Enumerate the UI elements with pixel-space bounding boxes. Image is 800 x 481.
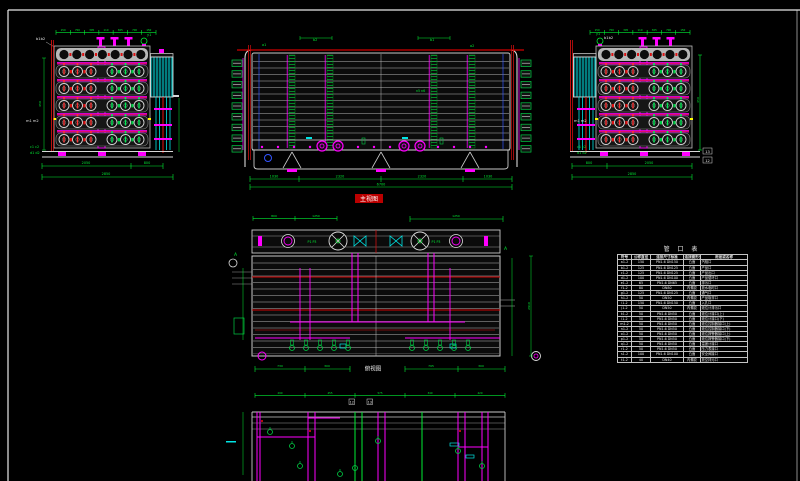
bottom-view-top-ticks: 290455575340420: [255, 391, 505, 398]
left-view-base: [42, 152, 173, 158]
front-view-label-a1: a1: [262, 43, 266, 47]
front-view-skirt: [254, 150, 508, 172]
front-view-right-flange-stack: [521, 60, 531, 152]
plan-bottom-dim-1: 730: [277, 364, 283, 368]
plan-view-section-a-right: A: [504, 246, 508, 252]
left-view-top-ticks: 150700305110305700150: [56, 28, 156, 35]
nozzle-table-cell: t1-2: [618, 357, 632, 362]
right-view-dim-total: 2850: [628, 172, 637, 176]
left-view-dim-seg2: 800: [144, 161, 150, 165]
left-view-label-m: m1 m2: [26, 119, 39, 123]
right-view-dim-seg2: 2050: [645, 161, 654, 165]
right-view-part-a: 13: [705, 150, 710, 154]
left-view-left-pipes: [42, 40, 54, 152]
front-view: a1 b2 b1 a2 n5 n6 1030 2320 2320 1030 67…: [232, 36, 531, 203]
plan-view-section-a-left: A: [234, 252, 238, 258]
svg-text:420: 420: [478, 391, 483, 395]
right-view-base: [570, 152, 700, 158]
svg-text:700: 700: [666, 28, 671, 32]
front-view-label-n: n5 n6: [416, 89, 425, 93]
right-view-label-b: b1b2: [604, 36, 613, 40]
svg-text:150: 150: [61, 28, 66, 32]
bottom-view-bubble-b-label: 13: [368, 401, 372, 405]
svg-text:290: 290: [278, 391, 283, 395]
nozzle-table-cell: 放空排污口: [701, 357, 748, 362]
plan-bottom-dim-4: 300: [478, 364, 484, 368]
front-view-label-a2: a2: [470, 44, 474, 48]
bottom-view-valves: [268, 427, 485, 477]
plan-view-top-channel: [252, 230, 500, 253]
front-dim-2: 2320: [336, 175, 345, 179]
plan-view-title: 俯视图: [365, 365, 382, 373]
left-view-economizer: [151, 49, 180, 153]
plan-view-p-right: P1 P3: [432, 240, 441, 244]
plan-view-right-dim: 2910: [527, 302, 531, 310]
svg-text:305: 305: [118, 28, 123, 32]
plan-view: 8001250 1250 P1 P3 P1 P: [229, 214, 541, 373]
plan-view-top-dim-right-label: 1250: [452, 214, 460, 218]
left-view-label-c: c1 c2: [30, 145, 39, 149]
right-view-side-dim: 450: [696, 97, 700, 103]
bottom-view: 290455575340420 12 13: [226, 391, 505, 481]
nozzle-table: 符号公称直径连接尺寸标准连接面形式用途或名称 a1-2150PN1.6 DN15…: [617, 254, 747, 363]
svg-text:455: 455: [328, 391, 333, 395]
bottom-view-body: [226, 412, 505, 481]
svg-text:1250: 1250: [312, 214, 320, 218]
plan-view-p-left: P1 P3: [308, 240, 317, 244]
svg-text:305: 305: [652, 28, 657, 32]
svg-text:700: 700: [75, 28, 80, 32]
left-view-dim-total: 2850: [102, 172, 111, 176]
left-view-label-y1: y1: [147, 33, 151, 37]
cad-drawing-sheet: 150700305110305700150 450: [0, 0, 800, 481]
plan-bottom-dim-3: 795: [428, 364, 434, 368]
plan-view-top-dims-left: 8001250: [253, 214, 337, 221]
nozzle-table-header-cell: 连接面形式: [684, 255, 701, 260]
left-view-label-d: d1 d2: [30, 151, 40, 155]
front-dim-1: 1030: [270, 175, 279, 179]
bottom-view-pipes: [257, 412, 488, 481]
cad-canvas: 150700305110305700150 450: [0, 0, 800, 481]
front-view-bottom-dots: [261, 146, 487, 148]
front-view-top-brackets: [300, 36, 450, 40]
table-row: t1-240DN40内螺纹放空排污口: [618, 357, 748, 362]
svg-text:305: 305: [89, 28, 94, 32]
right-side-view: 150700305110305700150: [570, 28, 712, 180]
svg-text:700: 700: [132, 28, 137, 32]
svg-text:110: 110: [104, 28, 109, 32]
nozzle-table-cell: 40: [632, 357, 651, 362]
nozzle-table-cell: 内螺纹: [684, 357, 701, 362]
plan-bottom-dim-2: 300: [324, 364, 330, 368]
front-view-label-b2: b2: [313, 38, 317, 42]
right-view-dim-seg1: 800: [586, 161, 592, 165]
nozzle-table-grid: 符号公称直径连接尺寸标准连接面形式用途或名称 a1-2150PN1.6 DN15…: [617, 254, 748, 363]
left-view-tube-bank: [53, 46, 151, 148]
left-view-dim-seg1: 2050: [82, 161, 91, 165]
right-view-part-b: 12: [705, 159, 710, 163]
svg-text:700: 700: [609, 28, 614, 32]
plan-view-body: [252, 253, 500, 356]
svg-text:150: 150: [146, 28, 151, 32]
right-view-top-ticks: 150700305110305700150: [590, 28, 690, 35]
svg-text:150: 150: [680, 28, 685, 32]
right-view-left-pipes: [571, 40, 573, 152]
front-view-left-flange-stack: [232, 60, 242, 152]
front-view-body: [252, 53, 510, 150]
nozzle-table-header-cell: 公称直径: [632, 255, 651, 260]
svg-text:305: 305: [623, 28, 628, 32]
plan-view-cut-symbol-left: [229, 259, 237, 267]
left-view-height-dim: 450: [38, 101, 42, 107]
right-view-economizer: [574, 54, 597, 154]
svg-text:800: 800: [271, 214, 277, 218]
right-view-label-c: c1 c2: [577, 145, 586, 149]
left-side-view: 150700305110305700150 450: [26, 28, 179, 180]
right-view-tube-bank: [595, 46, 693, 148]
svg-text:340: 340: [428, 391, 433, 395]
front-dim-3: 2320: [418, 175, 427, 179]
bottom-view-bubble-a-label: 12: [350, 401, 354, 405]
right-view-label-m: m1 m2: [574, 119, 587, 123]
svg-text:110: 110: [638, 28, 643, 32]
right-view-label-d: d1 d2: [577, 151, 587, 155]
front-dim-4: 1030: [484, 175, 493, 179]
nozzle-table-title: 管 口 表: [617, 244, 747, 253]
right-view-label-y1: y1: [596, 32, 600, 36]
svg-text:575: 575: [378, 391, 383, 395]
front-view-title: 主视图: [360, 195, 378, 203]
front-dim-total: 6700: [377, 183, 386, 187]
front-view-label-b1: b1: [430, 38, 434, 42]
left-view-label-b: b1b2: [36, 37, 45, 41]
nozzle-table-cell: DN40: [651, 357, 684, 362]
